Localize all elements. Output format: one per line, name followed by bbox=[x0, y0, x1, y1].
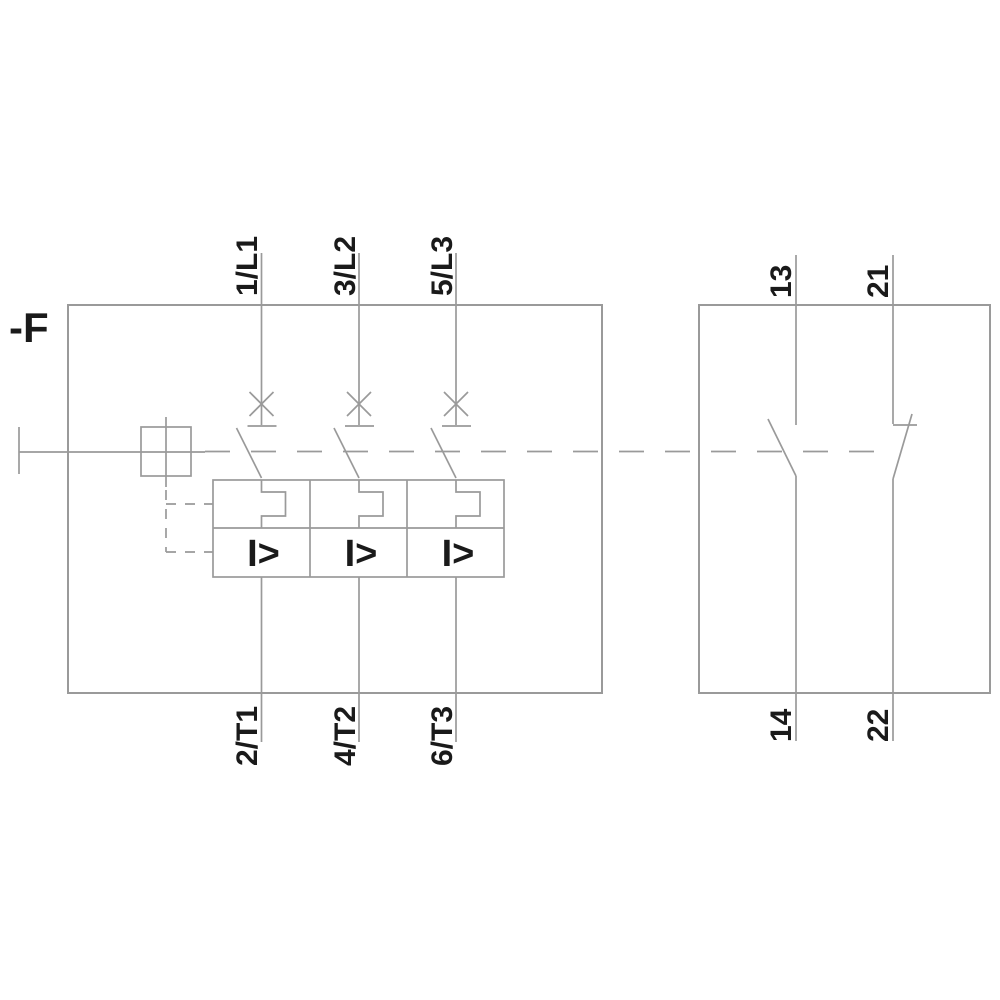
pole-2 bbox=[334, 253, 383, 742]
aux-nc-contact bbox=[893, 255, 917, 741]
pole-2-thermal-release-symbol bbox=[359, 480, 383, 528]
aux-nc-bottom-terminal-label: 22 bbox=[862, 709, 895, 742]
aux-no-bottom-terminal-label: 14 bbox=[765, 708, 798, 742]
wires bbox=[19, 253, 990, 742]
aux-contact-enclosure bbox=[699, 305, 990, 693]
pole-1-bottom-terminal-label: 2/T1 bbox=[231, 706, 264, 766]
aux-nc-switch-blade bbox=[893, 414, 912, 479]
aux-no-switch-blade bbox=[768, 419, 796, 476]
pole-1 bbox=[237, 253, 286, 742]
aux-no-contact bbox=[768, 255, 796, 741]
aux-nc-top-terminal-label: 21 bbox=[862, 265, 895, 298]
pole-1-top-terminal-label: 1/L1 bbox=[231, 236, 264, 296]
main-breaker-enclosure bbox=[68, 305, 602, 693]
pole-3 bbox=[431, 253, 480, 742]
pole-3-top-terminal-label: 5/L3 bbox=[426, 236, 459, 296]
aux-no-top-terminal-label: 13 bbox=[765, 265, 798, 298]
pole-2-magnetic-trip-label: I> bbox=[345, 533, 378, 575]
pole-2-top-terminal-label: 3/L2 bbox=[329, 236, 362, 296]
pole-2-switch-blade bbox=[334, 428, 359, 478]
pole-1-switch-blade bbox=[237, 428, 262, 478]
labels: -F 1/L1 3/L2 5/L3 2/T1 4/T2 6/T3 I> I> I… bbox=[9, 236, 895, 766]
pole-3-magnetic-trip-label: I> bbox=[442, 533, 475, 575]
pole-1-magnetic-trip-label: I> bbox=[247, 533, 280, 575]
pole-2-bottom-terminal-label: 4/T2 bbox=[329, 706, 362, 766]
schematic-canvas: -F 1/L1 3/L2 5/L3 2/T1 4/T2 6/T3 I> I> I… bbox=[0, 0, 1000, 1000]
device-tag-label: -F bbox=[9, 304, 49, 351]
pole-3-bottom-terminal-label: 6/T3 bbox=[426, 706, 459, 766]
pole-3-thermal-release-symbol bbox=[456, 480, 480, 528]
pole-3-switch-blade bbox=[431, 428, 456, 478]
pole-1-thermal-release-symbol bbox=[262, 480, 286, 528]
